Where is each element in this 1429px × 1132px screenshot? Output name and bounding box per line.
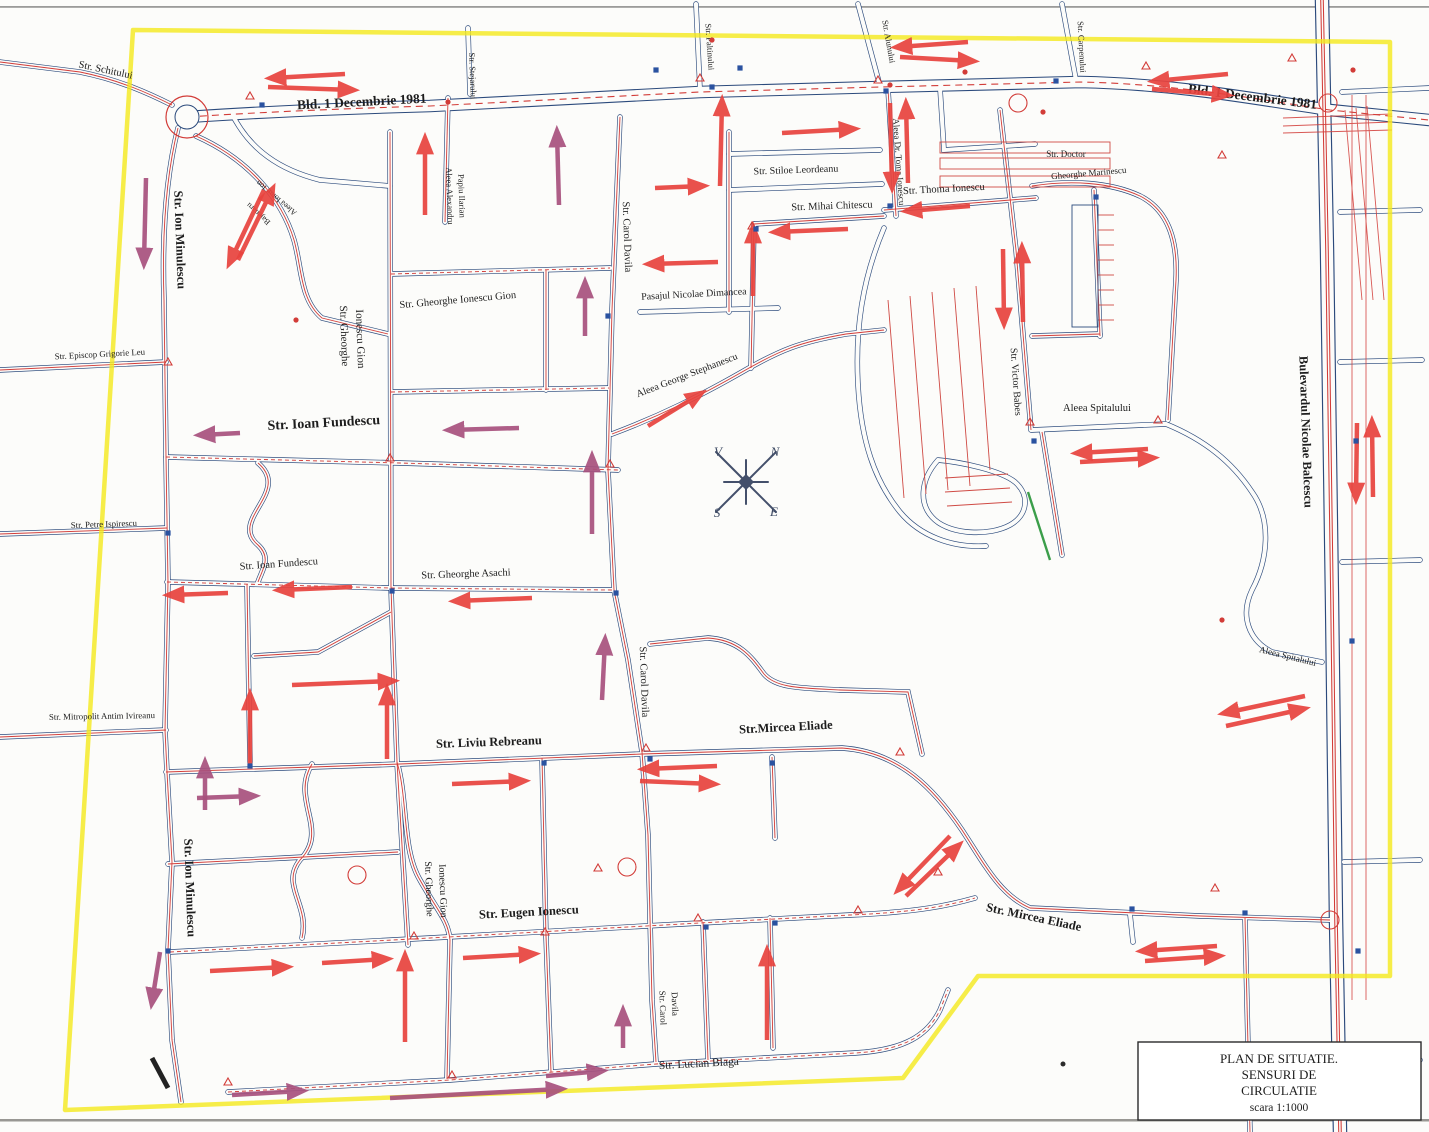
info-sign-icon bbox=[1053, 78, 1058, 83]
direction-arrow-icon bbox=[322, 959, 386, 963]
scanned-map-page: Str. SchituluiBld. 1 Decembrie 1981Bld. … bbox=[0, 0, 1429, 1132]
info-sign-icon bbox=[883, 88, 888, 93]
road-axis-dashed bbox=[228, 990, 948, 1092]
street-label: Str. Gheorghe bbox=[422, 861, 435, 917]
info-sign-icon bbox=[772, 920, 777, 925]
signal-dot-icon bbox=[445, 99, 450, 104]
direction-arrow-icon bbox=[230, 190, 264, 262]
direction-arrow-icon bbox=[1080, 458, 1152, 462]
direction-arrow-icon bbox=[655, 186, 702, 188]
road-surface-stroke bbox=[940, 88, 1035, 150]
street-label: Aleea Spitalului bbox=[1063, 403, 1131, 414]
ink-dot bbox=[1061, 1062, 1066, 1067]
traffic-signs bbox=[164, 37, 1361, 1085]
circle-marking-icon bbox=[1009, 94, 1027, 112]
info-sign-icon bbox=[247, 763, 252, 768]
road-casing-stroke bbox=[650, 638, 922, 754]
info-sign-icon bbox=[737, 65, 742, 70]
info-sign-icon bbox=[753, 226, 758, 231]
direction-arrow-icon bbox=[210, 967, 286, 971]
info-sign-icon bbox=[1031, 438, 1036, 443]
street-label: Str. Mircea Eliade bbox=[985, 900, 1083, 934]
compass-south-label: S bbox=[714, 505, 721, 520]
street-label: Str. Lucian Blaga bbox=[658, 1056, 739, 1072]
title-line-4: scara 1:1000 bbox=[1250, 1102, 1309, 1114]
info-sign-icon bbox=[1355, 948, 1360, 953]
street-label: Str. Thoma Ionescu bbox=[903, 182, 986, 197]
road-surface-stroke bbox=[858, 4, 880, 86]
road-casing-stroke bbox=[940, 88, 1035, 150]
street-label: Str. Carpenului bbox=[1076, 21, 1089, 74]
direction-arrow-icon bbox=[463, 954, 533, 958]
info-sign-icon bbox=[165, 530, 170, 535]
street-label: Str. Eugen Ionescu bbox=[479, 902, 580, 921]
road-casing-stroke bbox=[228, 990, 948, 1092]
direction-arrow-icon bbox=[450, 428, 519, 430]
warning-sign-icon bbox=[594, 864, 602, 871]
signal-dot-icon bbox=[293, 317, 298, 322]
road-surface-stroke bbox=[923, 460, 1025, 532]
info-sign-icon bbox=[709, 84, 714, 89]
street-label: Str. Carol Davila bbox=[637, 646, 650, 718]
road-axis bbox=[254, 612, 391, 656]
street-label: Str. Mihai Chitescu bbox=[791, 200, 873, 214]
direction-arrows bbox=[144, 42, 1373, 1098]
warning-sign-icon bbox=[896, 748, 904, 755]
circle-marking-icon bbox=[348, 866, 366, 884]
info-sign-icon bbox=[887, 203, 892, 208]
info-sign-icon bbox=[769, 760, 774, 765]
street-label: Aleea Alexandru bbox=[444, 167, 456, 225]
direction-arrow-icon bbox=[280, 587, 352, 590]
street-label: Str. Gheorghe Asachi bbox=[421, 567, 511, 581]
direction-arrow-icon bbox=[1022, 249, 1023, 322]
signal-dot-icon bbox=[1219, 617, 1224, 622]
road-axis bbox=[196, 136, 388, 334]
direction-arrow-icon bbox=[640, 781, 713, 784]
road-network bbox=[0, 0, 1429, 1132]
road-casing-stroke bbox=[166, 748, 1330, 920]
road-surface-stroke bbox=[640, 308, 778, 312]
signal-dot-icon bbox=[1040, 109, 1045, 114]
street-label: Bld. 1 Decembrie 1981 bbox=[1187, 81, 1318, 112]
direction-arrow-icon bbox=[602, 641, 605, 700]
info-sign-icon bbox=[1093, 194, 1098, 199]
title-line-1: PLAN DE SITUATIE. bbox=[1220, 1051, 1338, 1066]
direction-arrow-icon bbox=[268, 87, 352, 90]
info-sign-icon bbox=[703, 924, 708, 929]
road-surface-stroke bbox=[650, 638, 922, 754]
street-label: Str.Mircea Eliade bbox=[739, 718, 834, 737]
road-axis bbox=[0, 362, 166, 370]
title-block: PLAN DE SITUATIE. SENSURI DE CIRCULATIE … bbox=[1138, 1042, 1421, 1120]
direction-arrow-icon bbox=[456, 598, 532, 601]
scan-mark bbox=[152, 1058, 168, 1088]
info-sign-icon bbox=[605, 313, 610, 318]
road-casing-stroke bbox=[1032, 183, 1176, 420]
compass-rose: V N S E bbox=[714, 444, 781, 520]
signal-dot-icon bbox=[887, 82, 892, 87]
warning-sign-icon bbox=[1218, 151, 1226, 158]
street-label: Aleea Spitalului bbox=[1258, 644, 1317, 668]
road-surface-stroke bbox=[1032, 424, 1322, 662]
street-label: Str. Stejarului bbox=[467, 52, 479, 100]
street-label: Aleea George Stephanescu bbox=[635, 351, 739, 400]
street-label: Str. Ioan Fundescu bbox=[267, 413, 381, 434]
direction-arrow-icon bbox=[906, 105, 908, 183]
direction-arrow-icon bbox=[900, 57, 972, 61]
direction-arrow-icon bbox=[1145, 956, 1218, 961]
info-sign-icon bbox=[1349, 638, 1354, 643]
signal-dot-icon bbox=[962, 69, 967, 74]
scan-edge-top bbox=[0, 6, 1429, 8]
street-label: Str. Alunului bbox=[880, 19, 898, 64]
road-surface-stroke bbox=[1342, 560, 1420, 562]
street-label: Ionescu Gion bbox=[353, 309, 367, 369]
street-label: Str. Stiloe Leordeanu bbox=[753, 164, 838, 178]
road-axis bbox=[166, 748, 1330, 920]
compass-west-label: V bbox=[714, 444, 724, 459]
direction-arrow-icon bbox=[1155, 74, 1228, 81]
warning-sign-icon bbox=[1142, 62, 1150, 69]
direction-arrow-icon bbox=[782, 129, 853, 133]
map-canvas: Str. SchituluiBld. 1 Decembrie 1981Bld. … bbox=[0, 0, 1429, 1132]
road-surface-stroke bbox=[1062, 4, 1076, 80]
compass-north-label: N bbox=[770, 444, 781, 459]
road-axis bbox=[168, 852, 398, 864]
direction-arrow-icon bbox=[720, 102, 722, 186]
info-sign-icon bbox=[1129, 906, 1134, 911]
direction-arrow-icon bbox=[1078, 449, 1148, 453]
compass-east-label: E bbox=[769, 504, 778, 519]
street-label: Str. Gheorghe bbox=[337, 305, 351, 366]
direction-arrow-icon bbox=[776, 229, 848, 232]
direction-arrow-icon bbox=[1143, 946, 1217, 951]
street-label: Str. Ion Minulescu bbox=[181, 838, 198, 937]
info-sign-icon bbox=[647, 756, 652, 761]
direction-arrow-icon bbox=[650, 262, 718, 264]
warning-sign-icon bbox=[224, 1078, 232, 1085]
direction-arrow-icon bbox=[170, 593, 228, 595]
info-sign-icon bbox=[541, 760, 546, 765]
road-casing-stroke bbox=[1032, 424, 1322, 662]
street-label: Str. Ion Minulescu bbox=[171, 190, 188, 289]
direction-arrow-icon bbox=[152, 952, 160, 1002]
direction-arrow-icon bbox=[1356, 423, 1357, 497]
road-surface-stroke bbox=[1342, 88, 1429, 92]
info-sign-icon bbox=[259, 102, 264, 107]
road-surface-stroke bbox=[166, 748, 1330, 920]
street-label: Str. Liviu Rebreanu bbox=[436, 733, 542, 751]
road-surface-stroke bbox=[1032, 183, 1176, 420]
street-label: Str. Paltinului bbox=[703, 23, 716, 71]
road-surface-stroke bbox=[228, 990, 948, 1092]
street-label: Str. Gheorghe Ionescu Gion bbox=[399, 290, 517, 311]
direction-arrow-icon bbox=[452, 781, 523, 784]
title-line-2: SENSURI DE bbox=[1242, 1067, 1317, 1082]
street-label: Str. Mitropolit Antim Ivireanu bbox=[49, 710, 156, 722]
road-axis bbox=[1042, 432, 1062, 555]
direction-arrow-icon bbox=[272, 74, 345, 78]
road-surface bbox=[0, 0, 1429, 1132]
road-surface-stroke bbox=[1344, 860, 1420, 862]
direction-arrow-icon bbox=[292, 681, 392, 685]
street-label: Bulevardul Nicolae Balcescu bbox=[1296, 356, 1315, 509]
warning-sign-icon bbox=[1211, 884, 1219, 891]
street-label: Str. Victor Babes bbox=[1008, 348, 1024, 417]
road-axis bbox=[754, 216, 884, 224]
warning-sign-icon bbox=[246, 92, 254, 99]
street-label: Str. Carol bbox=[657, 990, 668, 1025]
direction-arrow-icon bbox=[1003, 249, 1004, 322]
warning-sign-icon bbox=[694, 914, 702, 921]
signal-dot-icon bbox=[1350, 67, 1355, 72]
road-axis bbox=[1032, 183, 1176, 420]
street-label: Davila bbox=[670, 992, 681, 1016]
road-axis-lines bbox=[0, 0, 1429, 1132]
info-sign-icon bbox=[1242, 910, 1247, 915]
street-label: Str. Ioan Fundescu bbox=[239, 556, 319, 572]
info-sign-icon bbox=[1353, 438, 1358, 443]
signal-dot-icon bbox=[709, 37, 714, 42]
street-label: Str. Episcop Grigorie Leu bbox=[54, 347, 145, 362]
green-lane-marking bbox=[1028, 492, 1050, 560]
direction-arrow-icon bbox=[890, 103, 892, 186]
direction-arrow-icon bbox=[898, 42, 968, 47]
direction-arrow-icon bbox=[645, 766, 717, 769]
direction-arrow-icon bbox=[648, 394, 700, 426]
street-label: Ionescu Gion bbox=[436, 864, 449, 918]
road-axis bbox=[650, 638, 922, 754]
direction-arrow-icon bbox=[144, 178, 146, 262]
street-label: Gheorghe Marinescu bbox=[1051, 165, 1128, 182]
street-label: Str. Doctor bbox=[1046, 149, 1086, 159]
info-sign-icon bbox=[653, 67, 658, 72]
title-line-3: CIRCULATIE bbox=[1241, 1083, 1317, 1098]
circle-marking-icon bbox=[618, 858, 636, 876]
info-sign-icon bbox=[389, 588, 394, 593]
street-label: Str. Carol Davila bbox=[620, 201, 633, 273]
warning-sign-icon bbox=[1288, 54, 1296, 61]
direction-arrow-icon bbox=[557, 133, 559, 205]
direction-arrow-icon bbox=[201, 433, 240, 435]
info-sign-icon bbox=[613, 590, 618, 595]
info-sign-icon bbox=[165, 948, 170, 953]
direction-arrow-icon bbox=[1372, 423, 1373, 497]
street-label: Papiu Ilarian bbox=[456, 174, 468, 219]
road-surface-stroke bbox=[729, 150, 880, 154]
